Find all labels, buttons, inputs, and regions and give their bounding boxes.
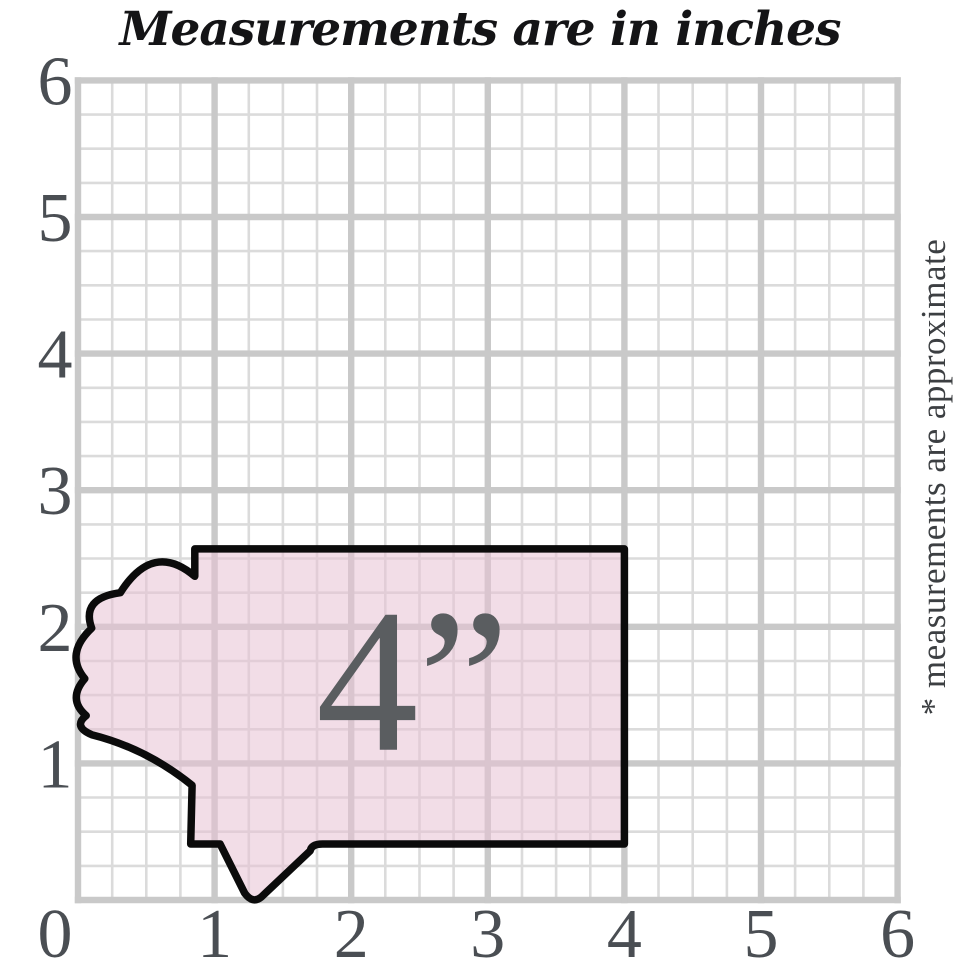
x-tick-label: 1 [197,896,232,973]
y-tick-label: 1 [38,726,73,803]
graph-paper-canvas: 0123456123456 4” [0,0,980,980]
shape-size-label: 4” [316,568,510,795]
x-tick-label: 2 [334,896,369,973]
x-tick-label: 6 [880,896,915,973]
y-tick-label: 2 [38,590,73,667]
x-tick-label: 3 [470,896,505,973]
y-tick-label: 6 [38,43,73,120]
x-tick-label: 0 [38,896,73,973]
y-tick-label: 3 [38,453,73,530]
measurement-diagram-page: Measurements are in inches * measurement… [0,0,980,980]
x-tick-label: 5 [744,896,779,973]
x-tick-label: 4 [607,896,642,973]
y-tick-label: 4 [38,317,73,394]
y-tick-label: 5 [38,180,73,257]
